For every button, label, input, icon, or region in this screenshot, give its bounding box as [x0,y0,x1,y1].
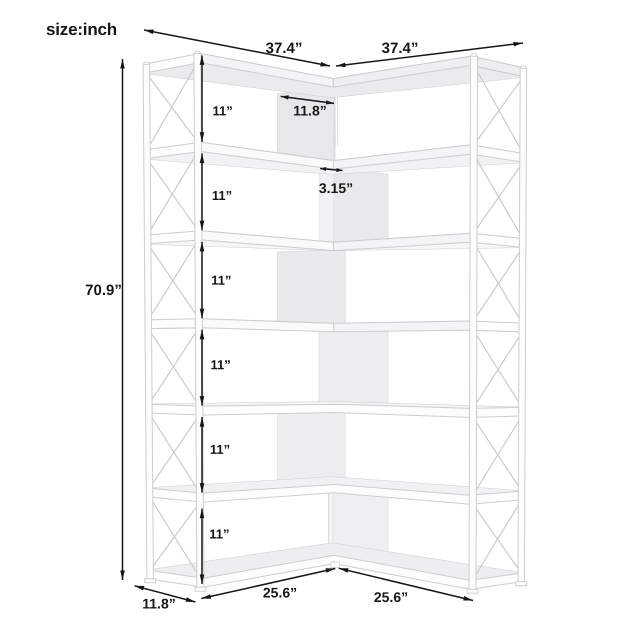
svg-text:size:inch: size:inch [46,20,117,39]
svg-text:11.8”: 11.8” [293,102,326,118]
svg-text:3.15”: 3.15” [319,180,353,196]
svg-text:11”: 11” [211,273,231,288]
svg-text:11”: 11” [212,188,232,203]
svg-text:11”: 11” [211,357,231,372]
svg-text:11”: 11” [212,103,232,118]
svg-text:37.4”: 37.4” [382,40,419,57]
svg-text:11”: 11” [210,442,230,457]
svg-text:37.4”: 37.4” [266,40,303,57]
svg-text:25.6”: 25.6” [374,589,408,605]
svg-text:25.6”: 25.6” [263,584,297,600]
svg-text:11”: 11” [209,527,229,542]
svg-text:11.8”: 11.8” [142,595,175,611]
svg-text:70.9”: 70.9” [85,282,122,299]
